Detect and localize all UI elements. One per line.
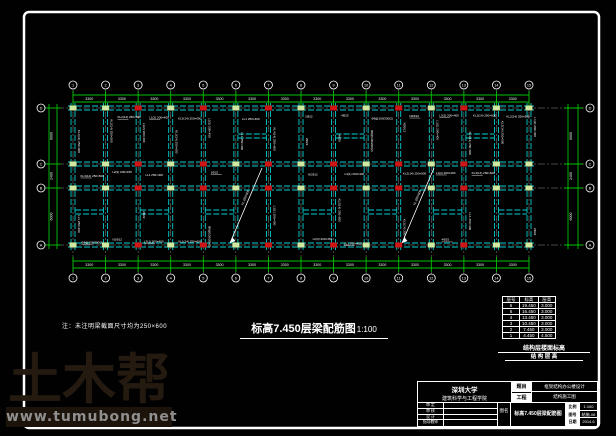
svg-text:4: 4	[170, 83, 172, 87]
signature-label: 指导教师	[418, 420, 444, 426]
svg-text:3300: 3300	[509, 97, 517, 101]
svg-text:C: C	[40, 162, 43, 166]
svg-text:11: 11	[397, 276, 401, 280]
table-row: 6 19.450 3.000	[503, 303, 556, 309]
field-label: 题目	[512, 382, 531, 392]
svg-text:D: D	[589, 106, 592, 110]
svg-text:15: 15	[527, 83, 531, 87]
svg-text:L3(1) 200×400: L3(1) 200×400	[272, 206, 276, 226]
svg-text:2Φ22: 2Φ22	[533, 228, 537, 236]
signature-label: 审 核	[418, 409, 444, 414]
svg-text:3300: 3300	[444, 97, 452, 101]
watermark-logo: 土木帮	[8, 353, 170, 407]
svg-text:3300: 3300	[85, 97, 93, 101]
svg-text:3300: 3300	[378, 97, 386, 101]
svg-text:1: 1	[72, 276, 74, 280]
svg-text:Φ8@100/200(2): Φ8@100/200(2)	[371, 117, 393, 121]
svg-text:5: 5	[202, 276, 204, 280]
signature-label: 设 计	[418, 415, 444, 420]
svg-text:A: A	[40, 243, 43, 247]
table-row: 1 4.450 4.500	[503, 333, 556, 339]
project-line: 结构施工图	[532, 392, 597, 402]
svg-text:Φ8@100/200(2): Φ8@100/200(2)	[370, 130, 374, 152]
svg-text:KL3(14) 250×600: KL3(14) 250×600	[472, 171, 496, 175]
svg-text:2400: 2400	[50, 172, 54, 180]
svg-text:9: 9	[333, 83, 335, 87]
svg-text:LL1 250×400: LL1 250×400	[242, 117, 260, 121]
svg-text:KL2(14) 250×500: KL2(14) 250×500	[338, 199, 342, 223]
svg-text:B: B	[589, 186, 592, 190]
floor-elevation-table: 层号 标高 层高 6 19.450 3.000 5 16.450 3.000 4…	[502, 296, 556, 339]
svg-text:10: 10	[364, 83, 368, 87]
title-block-project: 框架结构办公楼设计 结构施工图	[532, 382, 597, 403]
svg-text:LL1 250×400: LL1 250×400	[468, 213, 472, 231]
svg-text:KL1(14) 250×600: KL1(14) 250×600	[468, 132, 472, 156]
project-line: 框架结构办公楼设计	[532, 382, 597, 392]
meta-value: 2014.6	[580, 418, 597, 426]
meta-value: 结施-06	[580, 411, 597, 418]
title-block-field-labels: 题目 工程	[512, 382, 532, 403]
svg-text:3300: 3300	[411, 97, 419, 101]
table-cell: 13.450	[520, 315, 539, 321]
svg-text:Φ8@100/200(2): Φ8@100/200(2)	[207, 226, 211, 248]
svg-text:L2(3) 200×450: L2(3) 200×450	[112, 170, 132, 174]
svg-text:13: 13	[462, 276, 466, 280]
title-block: 深圳大学 建筑科学与工程学院 题目 工程 框架结构办公楼设计 结构施工图 审 定…	[417, 381, 598, 427]
svg-text:A: A	[589, 243, 592, 247]
svg-text:KL3(14) 250×600: KL3(14) 250×600	[175, 130, 179, 154]
svg-text:5: 5	[202, 83, 204, 87]
svg-text:2: 2	[105, 83, 107, 87]
svg-text:2Φ22: 2Φ22	[211, 170, 219, 174]
svg-text:L2(3) 200×450: L2(3) 200×450	[313, 237, 333, 241]
table-row: 5 16.450 3.000	[503, 309, 556, 315]
svg-text:3300: 3300	[346, 97, 354, 101]
drawing-note: 注：未注明梁截面尺寸均为250×600	[62, 321, 167, 330]
title-block-signatures: 审 定 审 核 设 计 指导教师	[418, 403, 498, 426]
signature-value	[444, 403, 498, 408]
svg-text:3300: 3300	[509, 263, 517, 267]
svg-text:6000: 6000	[50, 132, 54, 140]
table-cell: 10.450	[520, 321, 539, 327]
table-cell: 4.500	[538, 333, 555, 339]
svg-text:3300: 3300	[476, 97, 484, 101]
svg-text:8: 8	[300, 276, 302, 280]
meta-label: 图号	[566, 411, 580, 418]
svg-text:Φ8@100/200(2): Φ8@100/200(2)	[81, 240, 103, 244]
svg-text:N2Φ12: N2Φ12	[403, 123, 407, 133]
signature-row: 指导教师	[418, 420, 498, 426]
svg-text:3300: 3300	[150, 97, 158, 101]
svg-text:12: 12	[429, 276, 433, 280]
svg-text:4Φ25: 4Φ25	[338, 134, 342, 142]
svg-text:L1(2) 200×400: L1(2) 200×400	[533, 117, 537, 137]
svg-text:L1(2) 200×400: L1(2) 200×400	[149, 115, 169, 119]
svg-text:L3(1) 200×400: L3(1) 200×400	[439, 113, 459, 117]
svg-text:3300: 3300	[85, 263, 93, 267]
svg-text:N2Φ12: N2Φ12	[112, 237, 122, 241]
svg-text:KL3(14) 250×600: KL3(14) 250×600	[81, 174, 105, 178]
svg-text:2: 2	[105, 276, 107, 280]
svg-text:2Φ22: 2Φ22	[305, 138, 309, 146]
svg-text:9: 9	[333, 276, 335, 280]
meta-row: 比例 1:100	[566, 403, 597, 411]
svg-text:2Φ22: 2Φ22	[142, 211, 146, 219]
svg-text:D: D	[40, 106, 43, 110]
svg-text:3300: 3300	[346, 263, 354, 267]
svg-text:6000: 6000	[569, 213, 573, 221]
svg-text:KL2(14) 250×500: KL2(14) 250×500	[506, 115, 530, 119]
svg-text:6000: 6000	[50, 213, 54, 221]
svg-text:2Φ22: 2Φ22	[305, 115, 313, 119]
svg-text:2400: 2400	[569, 172, 573, 180]
svg-text:3300: 3300	[216, 263, 224, 267]
svg-text:B: B	[40, 186, 43, 190]
svg-text:KL4(14) 250×600: KL4(14) 250×600	[272, 128, 276, 152]
svg-text:L3(1) 200×400: L3(1) 200×400	[345, 172, 365, 176]
svg-text:3300: 3300	[118, 263, 126, 267]
svg-text:4: 4	[170, 276, 172, 280]
table-cell: 19.450	[520, 303, 539, 309]
svg-text:3: 3	[137, 276, 139, 280]
watermark-url: www.tumubong.net	[6, 407, 172, 427]
table-cell: 1	[503, 333, 520, 339]
svg-text:KL3(14) 250×600: KL3(14) 250×600	[178, 116, 202, 120]
svg-text:3300: 3300	[281, 263, 289, 267]
svg-text:4Φ25: 4Φ25	[442, 238, 450, 242]
svg-text:3300: 3300	[150, 263, 158, 267]
svg-text:LL1 250×400: LL1 250×400	[240, 133, 244, 151]
svg-text:13: 13	[462, 83, 466, 87]
drawing-name: 标高7.450层梁配筋图	[511, 403, 566, 426]
svg-text:KL1(14) 250×600: KL1(14) 250×600	[178, 239, 202, 243]
drawing-title: 标高7.450层梁配筋图1:100	[240, 320, 388, 339]
svg-text:3300: 3300	[313, 97, 321, 101]
svg-text:3300: 3300	[183, 97, 191, 101]
svg-text:C: C	[589, 162, 592, 166]
drawing-name-label: 图名	[498, 403, 511, 426]
svg-text:15: 15	[527, 276, 531, 280]
svg-text:KL1(14) 250×600: KL1(14) 250×600	[77, 130, 81, 154]
svg-text:L3(1) 200×400: L3(1) 200×400	[144, 239, 164, 243]
table-row: 4 13.450 3.000	[503, 315, 556, 321]
svg-text:N2Φ12: N2Φ12	[409, 114, 419, 118]
svg-text:3300: 3300	[183, 263, 191, 267]
svg-text:4Φ25: 4Φ25	[341, 113, 349, 117]
svg-text:KL2(14) 250×500: KL2(14) 250×500	[110, 119, 114, 143]
svg-text:3300: 3300	[281, 97, 289, 101]
svg-text:6: 6	[235, 276, 237, 280]
svg-text:L1(2) 200×400: L1(2) 200×400	[142, 123, 146, 143]
svg-text:14: 14	[494, 276, 498, 280]
svg-text:KL2(14) 250×500: KL2(14) 250×500	[117, 115, 141, 119]
svg-text:KL2(14) 250×500: KL2(14) 250×500	[500, 121, 504, 145]
table-caption-line2: 结 构 层 高	[505, 352, 583, 361]
signature-value	[444, 420, 498, 426]
cad-drawing-page: 3300330033003300330033003300330033003300…	[0, 0, 616, 436]
svg-text:3300: 3300	[248, 97, 256, 101]
drawing-scale: 1:100	[357, 325, 377, 334]
table-cell: 4.450	[520, 333, 539, 339]
svg-text:KL1(14) 250×600: KL1(14) 250×600	[473, 113, 497, 117]
svg-text:3300: 3300	[118, 97, 126, 101]
svg-text:LL1 250×400: LL1 250×400	[77, 215, 81, 233]
svg-text:14: 14	[494, 83, 498, 87]
field-label: 工程	[512, 393, 531, 403]
meta-row: 图号 结施-06	[566, 411, 597, 419]
svg-text:6: 6	[235, 83, 237, 87]
svg-text:3300: 3300	[313, 263, 321, 267]
title-block-school: 深圳大学 建筑科学与工程学院	[418, 382, 512, 403]
svg-text:3300: 3300	[411, 263, 419, 267]
table-header-row: 层号 标高 层高	[503, 297, 556, 303]
table-row: 3 10.450 3.000	[503, 321, 556, 327]
svg-text:1: 1	[72, 83, 74, 87]
svg-text:3300: 3300	[444, 263, 452, 267]
svg-text:LL1 250×400: LL1 250×400	[344, 241, 362, 245]
signature-value	[444, 415, 498, 420]
signature-label: 审 定	[418, 403, 444, 408]
svg-text:XL 250×500: XL 250×500	[240, 189, 250, 206]
svg-text:L2(3) 200×450: L2(3) 200×450	[207, 118, 211, 138]
svg-text:3: 3	[137, 83, 139, 87]
svg-text:11: 11	[397, 83, 401, 87]
table-row: 2 7.450 3.000	[503, 327, 556, 333]
svg-text:L1(2) 200×400: L1(2) 200×400	[436, 171, 456, 175]
svg-text:XL 250×500: XL 250×500	[412, 189, 422, 206]
svg-text:3300: 3300	[248, 263, 256, 267]
svg-text:7: 7	[267, 83, 269, 87]
svg-text:LL1 250×400: LL1 250×400	[145, 173, 163, 177]
svg-text:10: 10	[364, 276, 368, 280]
table-cell: 16.450	[520, 309, 539, 315]
svg-text:3300: 3300	[378, 263, 386, 267]
title-block-meta: 比例 1:100 图号 结施-06 日期 2014.6	[566, 403, 597, 426]
svg-text:L3(1) 200×400: L3(1) 200×400	[435, 120, 439, 140]
school-college: 建筑科学与工程学院	[418, 395, 511, 402]
meta-row: 日期 2014.6	[566, 418, 597, 426]
drawing-title-text: 标高7.450层梁配筋图	[251, 323, 356, 335]
meta-label: 日期	[566, 418, 580, 426]
svg-text:3300: 3300	[476, 263, 484, 267]
svg-text:7: 7	[267, 276, 269, 280]
svg-text:6000: 6000	[569, 132, 573, 140]
meta-label: 比例	[566, 403, 580, 410]
svg-text:N2Φ12: N2Φ12	[308, 172, 318, 176]
svg-text:3300: 3300	[216, 97, 224, 101]
svg-text:8: 8	[300, 83, 302, 87]
meta-value: 1:100	[580, 403, 597, 410]
svg-text:KL2(14) 250×500: KL2(14) 250×500	[403, 172, 427, 176]
school-name: 深圳大学	[418, 384, 511, 394]
svg-text:12: 12	[429, 83, 433, 87]
signature-value	[444, 409, 498, 414]
